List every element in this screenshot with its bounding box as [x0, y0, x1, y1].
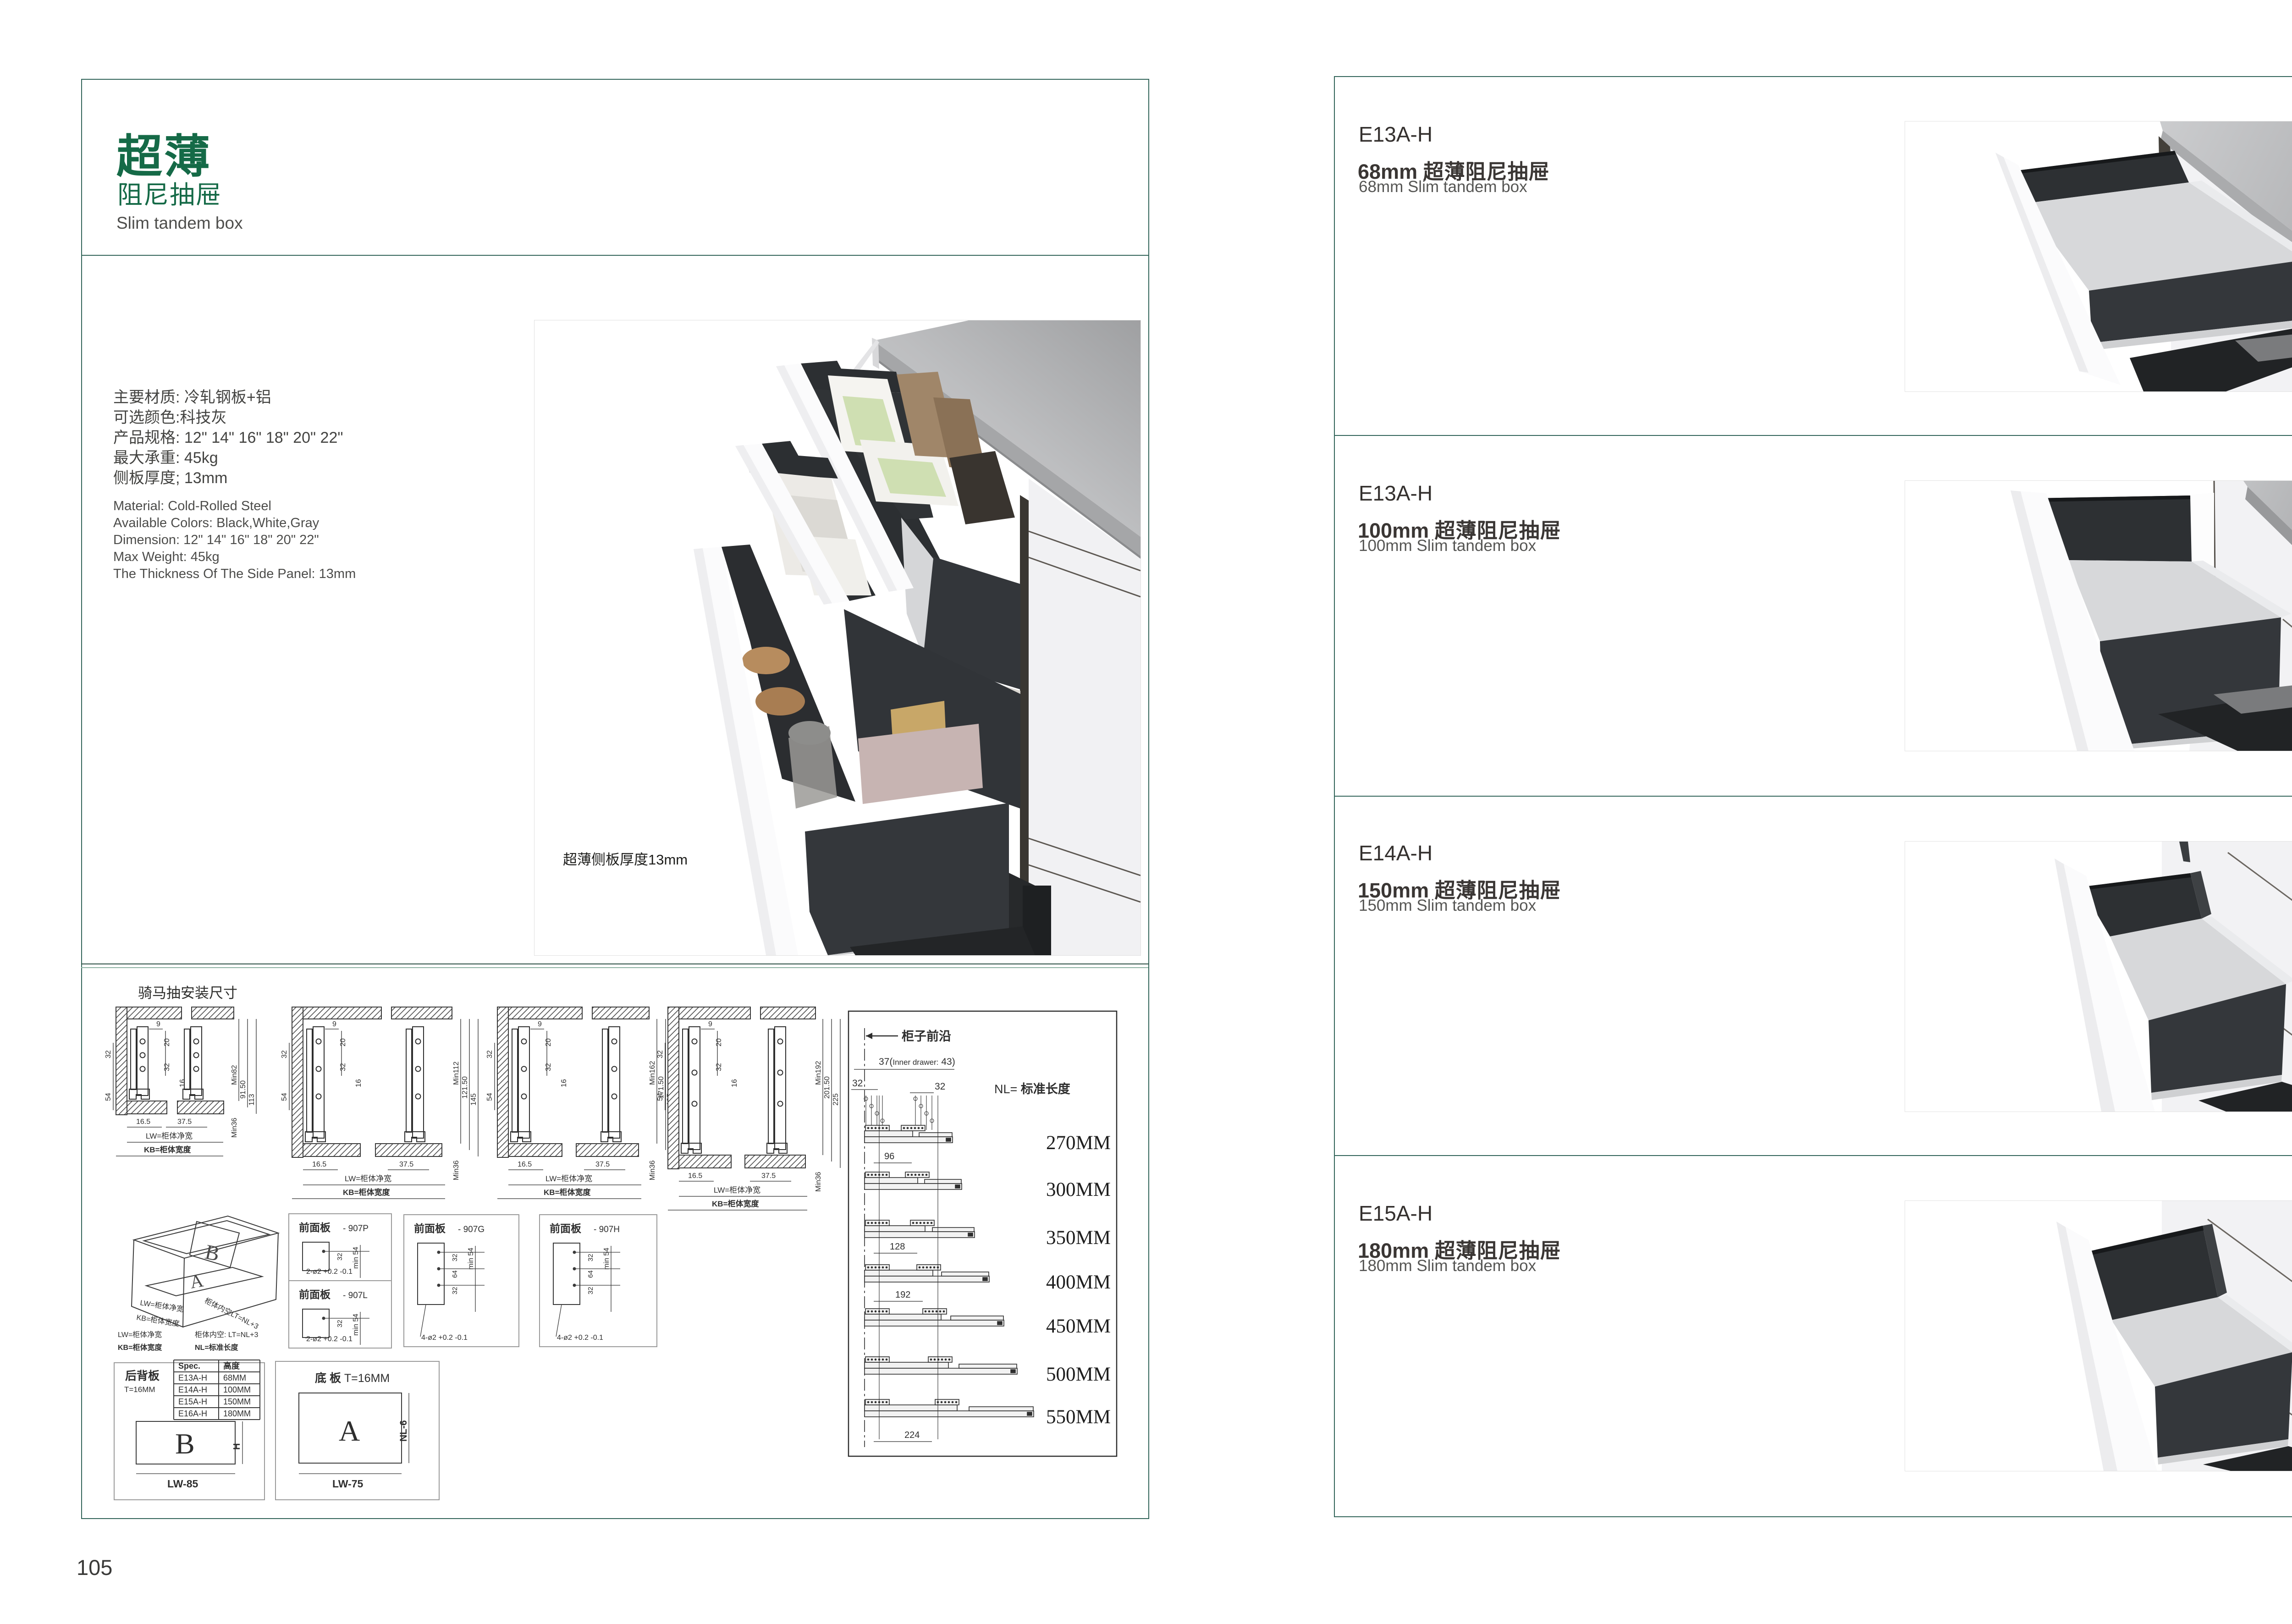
svg-text:- 907P: - 907P [343, 1224, 369, 1233]
svg-text:37(Inner drawer: 43): 37(Inner drawer: 43) [879, 1057, 955, 1067]
svg-text:E14A-H: E14A-H [178, 1385, 207, 1394]
svg-text:32: 32 [935, 1081, 945, 1092]
svg-text:192: 192 [895, 1290, 910, 1300]
svg-text:145: 145 [470, 1093, 478, 1106]
svg-text:min 54: min 54 [603, 1248, 611, 1270]
svg-text:180MM: 180MM [223, 1409, 251, 1418]
svg-text:KB=柜体宽度: KB=柜体宽度 [118, 1343, 162, 1352]
svg-text:E16A-H: E16A-H [178, 1409, 207, 1418]
svg-text:32: 32 [656, 1050, 664, 1058]
svg-text:- 907L: - 907L [343, 1291, 368, 1300]
svg-text:32: 32 [451, 1287, 459, 1294]
svg-text:32: 32 [281, 1050, 288, 1058]
svg-text:前面板: 前面板 [414, 1222, 446, 1234]
svg-text:9: 9 [708, 1020, 712, 1028]
svg-text:LW=柜体净宽: LW=柜体净宽 [118, 1331, 162, 1339]
svg-text:KB=柜体宽度: KB=柜体宽度 [136, 1313, 180, 1328]
svg-text:37.5: 37.5 [399, 1161, 413, 1168]
svg-text:H: H [232, 1443, 242, 1450]
svg-text:128: 128 [890, 1242, 905, 1252]
svg-text:54: 54 [105, 1093, 112, 1101]
svg-text:Spec.: Spec. [178, 1361, 200, 1371]
svg-text:500MM: 500MM [1046, 1364, 1111, 1385]
svg-text:16: 16 [355, 1079, 363, 1087]
svg-text:9: 9 [332, 1020, 336, 1028]
svg-text:32: 32 [486, 1050, 494, 1058]
svg-text:32: 32 [852, 1078, 863, 1089]
svg-text:20: 20 [339, 1038, 347, 1046]
svg-text:270MM: 270MM [1046, 1132, 1111, 1154]
svg-text:LW=柜体净宽: LW=柜体净宽 [345, 1174, 391, 1183]
svg-text:9: 9 [156, 1020, 160, 1028]
svg-text:150MM: 150MM [223, 1397, 251, 1406]
svg-text:4-ø2 +0.2 -0.1: 4-ø2 +0.2 -0.1 [421, 1334, 468, 1342]
svg-text:LW=柜体净宽: LW=柜体净宽 [545, 1174, 592, 1183]
svg-text:T=16MM: T=16MM [124, 1385, 155, 1394]
svg-text:450MM: 450MM [1046, 1316, 1111, 1337]
svg-text:300MM: 300MM [1046, 1179, 1111, 1200]
svg-text:柜体内空LT=NL+3: 柜体内空LT=NL+3 [203, 1297, 260, 1331]
svg-text:32: 32 [587, 1254, 595, 1261]
svg-text:32: 32 [163, 1063, 171, 1071]
svg-text:32: 32 [339, 1063, 347, 1071]
svg-text:LW=柜体净宽: LW=柜体净宽 [714, 1186, 760, 1195]
svg-text:16: 16 [179, 1079, 187, 1087]
svg-text:32: 32 [105, 1050, 112, 1058]
svg-text:68MM: 68MM [223, 1373, 246, 1382]
svg-text:32: 32 [587, 1287, 595, 1294]
svg-text:20: 20 [715, 1038, 723, 1046]
svg-text:225: 225 [832, 1093, 840, 1106]
svg-text:min 54: min 54 [352, 1314, 360, 1336]
svg-text:底 板 T=16MM: 底 板 T=16MM [315, 1371, 390, 1385]
svg-text:20: 20 [163, 1038, 171, 1046]
svg-text:9: 9 [538, 1020, 542, 1028]
svg-text:E13A-H: E13A-H [178, 1373, 207, 1382]
svg-text:64: 64 [587, 1270, 595, 1278]
svg-text:32: 32 [451, 1254, 459, 1261]
svg-text:16: 16 [731, 1079, 738, 1087]
svg-text:54: 54 [486, 1093, 494, 1101]
svg-text:37.5: 37.5 [177, 1118, 192, 1126]
svg-text:113: 113 [248, 1094, 256, 1106]
svg-text:400MM: 400MM [1046, 1272, 1111, 1293]
svg-text:KB=柜体宽度: KB=柜体宽度 [144, 1145, 191, 1154]
svg-text:37.5: 37.5 [595, 1161, 610, 1168]
svg-text:Min162: Min162 [649, 1061, 656, 1085]
svg-text:32: 32 [336, 1320, 344, 1327]
svg-text:min 54: min 54 [467, 1248, 475, 1270]
svg-text:LW=柜体净宽: LW=柜体净宽 [146, 1132, 193, 1140]
svg-text:Min36: Min36 [649, 1160, 656, 1180]
svg-text:B: B [203, 1240, 222, 1266]
svg-text:后背板: 后背板 [125, 1370, 160, 1382]
svg-text:201.50: 201.50 [823, 1076, 831, 1099]
svg-text:NL=标准长度: NL=标准长度 [195, 1343, 239, 1352]
svg-text:37.5: 37.5 [761, 1172, 776, 1180]
svg-text:121.50: 121.50 [461, 1076, 469, 1099]
svg-text:100MM: 100MM [223, 1385, 251, 1394]
svg-text:高度: 高度 [223, 1361, 240, 1371]
svg-text:96: 96 [884, 1151, 894, 1162]
svg-text:LW=柜体净宽: LW=柜体净宽 [139, 1299, 184, 1314]
svg-text:16.5: 16.5 [518, 1161, 532, 1168]
svg-text:32: 32 [545, 1063, 552, 1071]
svg-text:16.5: 16.5 [136, 1118, 150, 1126]
svg-text:Min192: Min192 [815, 1061, 822, 1085]
svg-text:Min36: Min36 [815, 1172, 822, 1192]
svg-text:Min36: Min36 [231, 1118, 238, 1138]
svg-text:前面板: 前面板 [550, 1222, 582, 1234]
svg-text:64: 64 [451, 1270, 459, 1278]
svg-text:前面板: 前面板 [299, 1288, 331, 1300]
svg-text:4-ø2 +0.2 -0.1: 4-ø2 +0.2 -0.1 [557, 1334, 603, 1342]
svg-text:Min112: Min112 [452, 1062, 460, 1085]
svg-text:NL-6: NL-6 [398, 1420, 409, 1442]
svg-text:350MM: 350MM [1046, 1227, 1111, 1249]
svg-text:Min82: Min82 [231, 1065, 238, 1085]
svg-text:16.5: 16.5 [688, 1172, 702, 1180]
svg-text:B: B [175, 1427, 195, 1460]
svg-text:min 54: min 54 [352, 1247, 360, 1269]
svg-text:前面板: 前面板 [299, 1222, 331, 1233]
svg-text:- 907H: - 907H [594, 1225, 620, 1234]
svg-text:32: 32 [336, 1253, 344, 1261]
svg-text:224: 224 [904, 1430, 920, 1440]
svg-text:Min36: Min36 [452, 1160, 460, 1180]
svg-text:NL= 标准长度: NL= 标准长度 [994, 1082, 1070, 1096]
svg-text:20: 20 [545, 1038, 552, 1046]
svg-text:550MM: 550MM [1046, 1406, 1111, 1428]
svg-text:柜体内空: LT=NL+3: 柜体内空: LT=NL+3 [195, 1331, 259, 1339]
svg-text:KB=柜体宽度: KB=柜体宽度 [712, 1199, 759, 1208]
svg-text:32: 32 [715, 1063, 723, 1071]
svg-text:E15A-H: E15A-H [178, 1397, 207, 1406]
svg-text:LW-75: LW-75 [332, 1478, 363, 1490]
svg-text:2-ø2 +0.2 -0.1: 2-ø2 +0.2 -0.1 [306, 1335, 353, 1343]
svg-text:柜子前沿: 柜子前沿 [902, 1029, 951, 1043]
svg-text:16: 16 [560, 1079, 568, 1087]
svg-text:LW-85: LW-85 [167, 1478, 198, 1490]
svg-text:- 907G: - 907G [458, 1225, 485, 1234]
svg-text:16.5: 16.5 [312, 1161, 326, 1168]
svg-text:54: 54 [656, 1093, 664, 1101]
svg-text:2-ø2 +0.2 -0.1: 2-ø2 +0.2 -0.1 [306, 1268, 353, 1276]
svg-text:KB=柜体宽度: KB=柜体宽度 [544, 1188, 591, 1197]
svg-text:A: A [339, 1415, 360, 1447]
svg-text:KB=柜体宽度: KB=柜体宽度 [343, 1188, 390, 1197]
svg-text:54: 54 [281, 1093, 288, 1101]
svg-text:91.50: 91.50 [239, 1080, 247, 1099]
